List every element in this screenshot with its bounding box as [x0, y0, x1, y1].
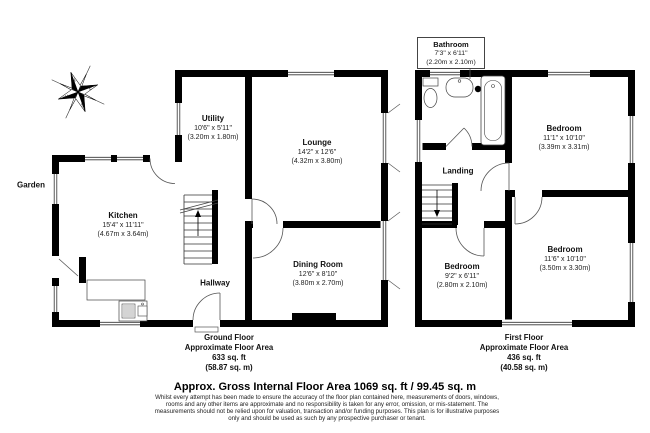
bedroom-small-door-arc: [456, 228, 484, 256]
disclaimer-text: Whilst every attempt has been made to en…: [87, 394, 567, 422]
room-dims-metric: (4.32m x 3.80m): [292, 157, 343, 167]
sink-basin-icon: [138, 306, 147, 316]
kitchen-counter: [87, 280, 145, 300]
ground-floor-summary: Ground Floor Approximate Floor Area 633 …: [185, 333, 274, 373]
disclaimer-line: rooms and any other items are approximat…: [87, 401, 567, 408]
room-name: Bedroom: [437, 262, 488, 272]
front-step: [195, 327, 218, 332]
floor-area-label: Approximate Floor Area: [185, 343, 274, 353]
bedroom-back-door-opening: [515, 190, 542, 198]
dining-door-opening: [253, 221, 283, 229]
room-name: Bedroom: [539, 124, 590, 134]
room-label-bedroom-back: Bedroom 11'6" x 10'10" (3.50m x 3.30m): [540, 245, 591, 274]
room-dims-metric: (3.20m x 1.80m): [188, 133, 239, 143]
bedroom-front-door-arc: [481, 163, 509, 191]
room-dims-imperial: 15'4" x 11'11": [98, 220, 149, 230]
room-name: Utility: [188, 114, 239, 124]
room-name: Hallway: [200, 279, 230, 288]
room-dims-metric: (4.67m x 3.64m): [98, 230, 149, 240]
room-label-bedroom-front: Bedroom 11'1" x 10'10" (3.39m x 3.31m): [539, 124, 590, 153]
floor-area-m: (58.87 sq. m): [185, 363, 274, 373]
toilet-icon: [424, 89, 437, 108]
room-dims-imperial: 12'6" x 8'10": [293, 269, 344, 279]
room-name: Lounge: [292, 138, 343, 148]
room-dims-imperial: 7'3" x 6'11": [418, 49, 484, 58]
garden-label: Garden: [17, 181, 45, 190]
bathroom-fixtures: [423, 76, 505, 145]
room-label-utility: Utility 10'6" x 5'11" (3.20m x 1.80m): [188, 114, 239, 143]
room-label-bedroom-small: Bedroom 9'2" x 6'11" (2.80m x 2.10m): [437, 262, 488, 291]
gross-internal-area-title: Approx. Gross Internal Floor Area 1069 s…: [0, 381, 650, 393]
floor-area-label: Approximate Floor Area: [480, 343, 569, 353]
lounge-door-arc: [252, 199, 277, 224]
room-name: Bathroom: [418, 40, 484, 49]
room-name: Dining Room: [293, 260, 344, 270]
chimney-breast: [292, 313, 336, 321]
compass-rose-icon: N E S W: [25, 39, 130, 144]
room-name: Landing: [442, 167, 473, 176]
room-name: Kitchen: [98, 211, 149, 221]
disclaimer-line: measurements should not be relied upon f…: [87, 408, 567, 415]
room-dims-imperial: 9'2" x 6'11": [437, 271, 488, 281]
stairs-down-arrow-icon: [434, 210, 440, 217]
room-dims-imperial: 10'6" x 5'11": [188, 123, 239, 133]
floor-area-m: (40.58 sq. m): [480, 363, 569, 373]
side-door-leaf: [59, 259, 78, 276]
dining-door-arc: [253, 228, 283, 258]
room-dims-imperial: 11'6" x 10'10": [540, 254, 591, 264]
room-dims-metric: (2.20m x 2.10m): [418, 58, 484, 67]
room-dims-metric: (2.80m x 2.10m): [437, 281, 488, 291]
floor-name: Ground Floor: [185, 333, 274, 343]
garden-label-text: Garden: [17, 181, 45, 190]
room-dims-imperial: 11'1" x 10'10": [539, 133, 590, 143]
room-label-bathroom: Bathroom 7'3" x 6'11" (2.20m x 2.10m): [417, 37, 485, 69]
first-floor-stairs: [422, 185, 452, 224]
front-door-arc: [193, 293, 220, 320]
bathroom-door-leaf: [446, 128, 464, 147]
room-label-lounge: Lounge 14'2" x 12'6" (4.32m x 3.80m): [292, 138, 343, 167]
stairs-up-arrow-icon: [195, 210, 201, 217]
utility-door-arc: [150, 159, 175, 184]
room-dims-metric: (3.39m x 3.31m): [539, 143, 590, 153]
bathroom-door-arc: [464, 128, 472, 147]
first-floor-summary: First Floor Approximate Floor Area 436 s…: [480, 333, 569, 373]
disclaimer-line: only and should be used as such by any p…: [87, 415, 567, 422]
side-door-opening: [52, 256, 60, 278]
front-door-opening: [193, 320, 220, 328]
floor-name: First Floor: [480, 333, 569, 343]
kitchen-fixtures: [87, 280, 147, 321]
room-label-kitchen: Kitchen 15'4" x 11'11" (4.67m x 3.64m): [98, 211, 149, 240]
toilet-cistern-icon: [423, 78, 438, 86]
floor-area-ft: 436 sq. ft: [480, 353, 569, 363]
bedroom-back-door-arc: [515, 197, 542, 224]
radiator-dot-icon: [475, 86, 481, 92]
room-name: Bedroom: [540, 245, 591, 255]
room-dims-imperial: 14'2" x 12'6": [292, 147, 343, 157]
room-label-landing: Landing: [442, 167, 473, 176]
floorplan-canvas: N E S W: [0, 0, 650, 433]
disclaimer-line: Whilst every attempt has been made to en…: [87, 394, 567, 401]
room-label-hallway: Hallway: [200, 279, 230, 288]
room-dims-metric: (3.80m x 2.70m): [293, 279, 344, 289]
room-dims-metric: (3.50m x 3.30m): [540, 264, 591, 274]
floor-area-ft: 633 sq. ft: [185, 353, 274, 363]
room-label-dining-room: Dining Room 12'6" x 8'10" (3.80m x 2.70m…: [293, 260, 344, 289]
basin-tap-icon: [458, 80, 461, 83]
